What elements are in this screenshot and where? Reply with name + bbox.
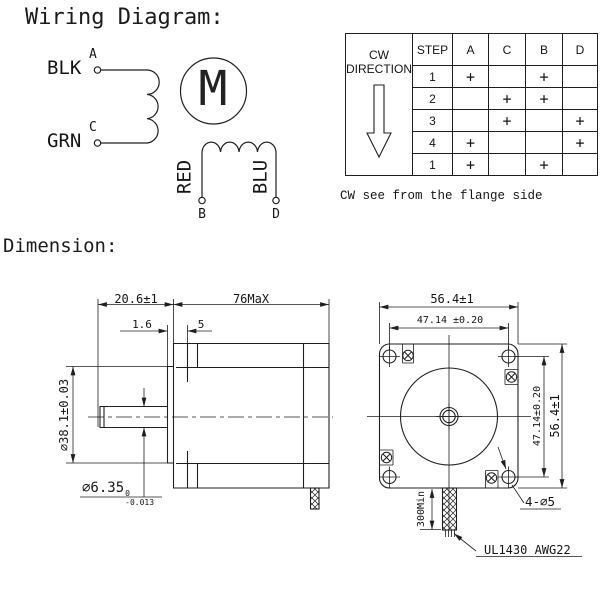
col-header-a: A bbox=[453, 34, 489, 66]
mount-holes-label: 4-⌀5 bbox=[525, 496, 555, 509]
boss-dia-ext-lines bbox=[66, 367, 168, 464]
dim-hole-spacing-h-label: 47.14 ±0.20 bbox=[417, 316, 483, 326]
dim-hole-spacing-v-label: 47.14±0.20 bbox=[533, 386, 543, 446]
terminal-d-dot bbox=[273, 197, 279, 203]
motor-symbol: M bbox=[199, 65, 228, 113]
phase-cell: + bbox=[453, 154, 489, 176]
phase-cell bbox=[563, 154, 598, 176]
phase-cell: + bbox=[526, 154, 563, 176]
cable-spec-label: UL1430 AWG22 bbox=[484, 544, 571, 556]
wire-label-black: BLK bbox=[47, 59, 81, 78]
dim-flange-thickness-label: 5 bbox=[198, 319, 205, 330]
cw-direction-header-line1: CW bbox=[346, 49, 412, 63]
phase-cell bbox=[453, 88, 489, 110]
col-header-c: C bbox=[489, 34, 526, 66]
phase-cell: + bbox=[526, 88, 563, 110]
body-corner-lines bbox=[176, 368, 329, 464]
cw-direction-cell: CW DIRECTION bbox=[346, 34, 413, 176]
cable-wire-strands bbox=[446, 530, 455, 537]
phase-cell: + bbox=[453, 132, 489, 154]
cw-direction-arrow-icon bbox=[366, 84, 392, 160]
screw-notch-top-left bbox=[403, 344, 414, 363]
phase-cell: + bbox=[563, 110, 598, 132]
phase-cell: + bbox=[526, 66, 563, 88]
col-header-d: D bbox=[563, 34, 598, 66]
dim-boss-diameter-label: ⌀38.1±0.03 bbox=[58, 379, 70, 451]
motor-body-outline bbox=[174, 344, 330, 489]
dimension-title: Dimension: bbox=[3, 237, 117, 256]
step-cell: 1 bbox=[413, 154, 453, 176]
phase-cell bbox=[489, 132, 526, 154]
col-header-step: STEP bbox=[413, 34, 453, 66]
terminal-label-a: A bbox=[89, 48, 97, 61]
table-caption: CW see from the flange side bbox=[340, 190, 543, 203]
terminal-a-dot bbox=[94, 67, 100, 73]
dim-height-label: 56.4±1 bbox=[549, 394, 561, 437]
winding-ac-coil bbox=[101, 70, 159, 143]
front-view-details bbox=[367, 335, 531, 537]
step-cell: 1 bbox=[413, 66, 453, 88]
terminal-label-b: B bbox=[198, 208, 206, 221]
terminal-b-dot bbox=[199, 197, 205, 203]
dim-shaft-length-label: 20.6±1 bbox=[114, 293, 157, 305]
pilot-boss bbox=[168, 367, 174, 464]
cable-length-label: 300Min bbox=[417, 491, 427, 527]
phase-cell: + bbox=[453, 66, 489, 88]
cable-exit-side bbox=[311, 488, 320, 509]
phase-cell bbox=[563, 88, 598, 110]
terminal-c-dot bbox=[94, 140, 100, 146]
wire-label-blue: BLU bbox=[252, 160, 271, 194]
cw-direction-header-line2: DIRECTION bbox=[346, 63, 412, 77]
shaft-diameter-value: ⌀6.35 bbox=[82, 480, 124, 496]
col-header-b: B bbox=[526, 34, 563, 66]
wiring-diagram-title: Wiring Diagram: bbox=[25, 7, 224, 29]
cable-front bbox=[443, 488, 457, 530]
step-cell: 2 bbox=[413, 88, 453, 110]
shaft-tol-lower: -0.013 bbox=[125, 499, 154, 508]
dim-width-label: 56.4±1 bbox=[430, 293, 473, 305]
dim-shaft-diameter-label: ⌀6.350-0.013 bbox=[82, 481, 154, 508]
wire-label-red: RED bbox=[176, 160, 195, 194]
cable-spec-leader-arrow bbox=[454, 534, 476, 552]
phase-cell bbox=[489, 66, 526, 88]
step-cell: 3 bbox=[413, 110, 453, 132]
wire-label-green: GRN bbox=[47, 132, 81, 151]
dim-body-length-label: 76MaX bbox=[233, 293, 269, 305]
phase-cell bbox=[526, 110, 563, 132]
phase-cell bbox=[526, 132, 563, 154]
phase-cell bbox=[489, 154, 526, 176]
phase-cell bbox=[563, 66, 598, 88]
terminal-label-c: C bbox=[89, 121, 97, 134]
step-cell: 4 bbox=[413, 132, 453, 154]
step-sequence-table: CW DIRECTION STEP A C B D 1 + + 2 + + 3 … bbox=[345, 33, 598, 176]
dim-boss-protrusion-label: 1.6 bbox=[132, 319, 152, 330]
phase-cell: + bbox=[489, 110, 526, 132]
phase-cell bbox=[453, 110, 489, 132]
phase-cell: + bbox=[489, 88, 526, 110]
mount-hole-leader-arrow bbox=[498, 447, 506, 469]
terminal-label-d: D bbox=[272, 208, 280, 221]
phase-cell: + bbox=[563, 132, 598, 154]
